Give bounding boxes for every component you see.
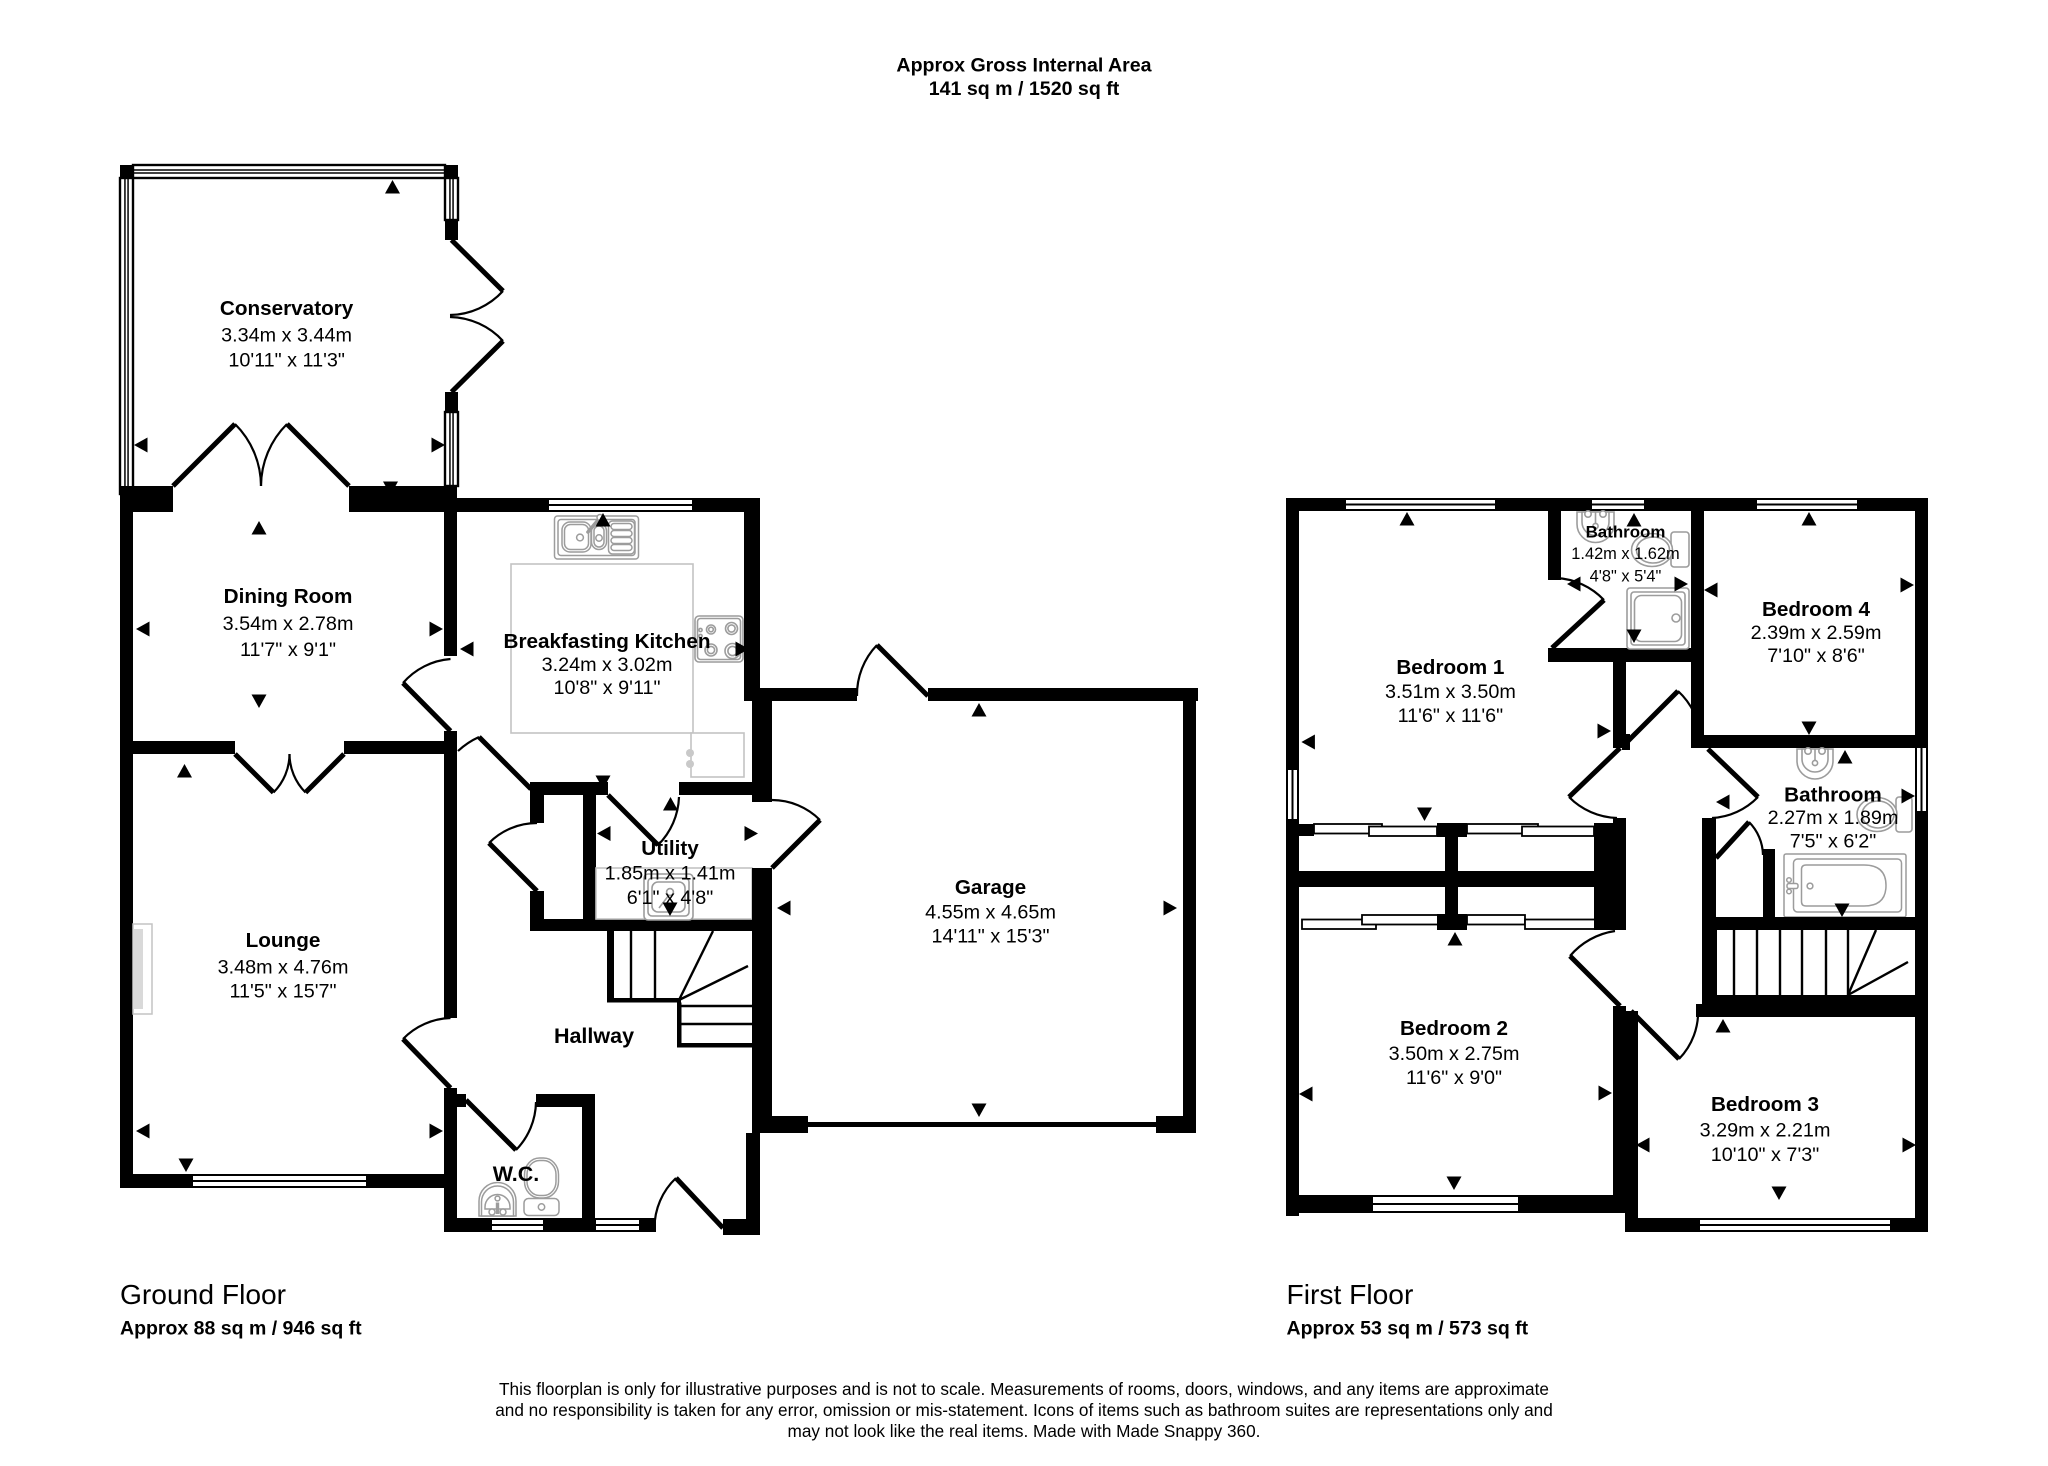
svg-text:11'5" x 15'7": 11'5" x 15'7" <box>229 981 336 1003</box>
svg-text:3.50m x 2.75m: 3.50m x 2.75m <box>1389 1043 1520 1065</box>
svg-text:Lounge: Lounge <box>246 929 321 952</box>
svg-text:11'6" x 9'0": 11'6" x 9'0" <box>1406 1067 1502 1089</box>
svg-text:10'11" x 11'3": 10'11" x 11'3" <box>228 350 345 372</box>
svg-text:Garage: Garage <box>955 876 1026 899</box>
svg-text:may not look like the real ite: may not look like the real items. Made w… <box>788 1421 1261 1441</box>
svg-text:Bedroom 2: Bedroom 2 <box>1400 1017 1508 1040</box>
svg-text:10'8" x 9'11": 10'8" x 9'11" <box>553 677 660 699</box>
svg-text:3.34m x 3.44m: 3.34m x 3.44m <box>221 325 352 347</box>
svg-text:and no responsibility is taken: and no responsibility is taken for any e… <box>495 1400 1553 1420</box>
svg-text:7'10" x 8'6": 7'10" x 8'6" <box>1767 645 1865 667</box>
svg-text:3.51m x 3.50m: 3.51m x 3.50m <box>1385 681 1516 703</box>
svg-text:Approx Gross Internal Area: Approx Gross Internal Area <box>896 54 1152 76</box>
svg-text:1.42m x 1.62m: 1.42m x 1.62m <box>1571 545 1679 563</box>
svg-text:Bedroom 4: Bedroom 4 <box>1762 598 1871 621</box>
svg-text:3.48m x 4.76m: 3.48m x 4.76m <box>218 957 349 979</box>
svg-text:3.54m x 2.78m: 3.54m x 2.78m <box>223 613 354 635</box>
svg-text:W.C.: W.C. <box>493 1162 540 1186</box>
svg-text:4'8" x 5'4": 4'8" x 5'4" <box>1590 568 1662 586</box>
svg-text:141 sq m / 1520 sq ft: 141 sq m / 1520 sq ft <box>929 78 1120 100</box>
svg-text:10'10" x 7'3": 10'10" x 7'3" <box>1711 1144 1820 1166</box>
svg-text:4.55m x 4.65m: 4.55m x 4.65m <box>925 902 1056 924</box>
svg-text:Bathroom: Bathroom <box>1586 523 1666 542</box>
svg-text:Conservatory: Conservatory <box>220 297 354 320</box>
svg-text:This floorplan is only for ill: This floorplan is only for illustrative … <box>499 1379 1549 1399</box>
svg-text:1.85m x 1.41m: 1.85m x 1.41m <box>605 863 736 885</box>
svg-text:6'1" x 4'8": 6'1" x 4'8" <box>627 887 714 909</box>
svg-text:Ground Floor: Ground Floor <box>120 1278 286 1310</box>
svg-text:14'11" x 15'3": 14'11" x 15'3" <box>931 926 1049 948</box>
svg-text:Bedroom 1: Bedroom 1 <box>1396 656 1504 679</box>
svg-text:11'7" x 9'1": 11'7" x 9'1" <box>240 639 336 661</box>
svg-text:Utility: Utility <box>641 837 699 860</box>
svg-text:Dining Room: Dining Room <box>224 585 353 608</box>
svg-text:Approx 88 sq m / 946 sq ft: Approx 88 sq m / 946 sq ft <box>120 1318 362 1340</box>
svg-text:Bedroom 3: Bedroom 3 <box>1711 1093 1819 1116</box>
svg-text:Breakfasting Kitchen: Breakfasting Kitchen <box>504 630 711 653</box>
svg-text:3.24m x 3.02m: 3.24m x 3.02m <box>542 654 673 676</box>
svg-text:Bathroom: Bathroom <box>1784 784 1882 807</box>
svg-text:3.29m x 2.21m: 3.29m x 2.21m <box>1700 1120 1831 1142</box>
svg-text:2.27m x 1.89m: 2.27m x 1.89m <box>1768 807 1899 829</box>
svg-text:2.39m x 2.59m: 2.39m x 2.59m <box>1751 622 1882 644</box>
svg-text:Approx 53 sq m / 573 sq ft: Approx 53 sq m / 573 sq ft <box>1287 1318 1529 1340</box>
svg-text:11'6" x 11'6": 11'6" x 11'6" <box>1398 705 1504 727</box>
svg-text:First Floor: First Floor <box>1287 1278 1414 1310</box>
svg-text:Hallway: Hallway <box>554 1024 634 1048</box>
svg-text:7'5" x 6'2": 7'5" x 6'2" <box>1790 831 1877 853</box>
